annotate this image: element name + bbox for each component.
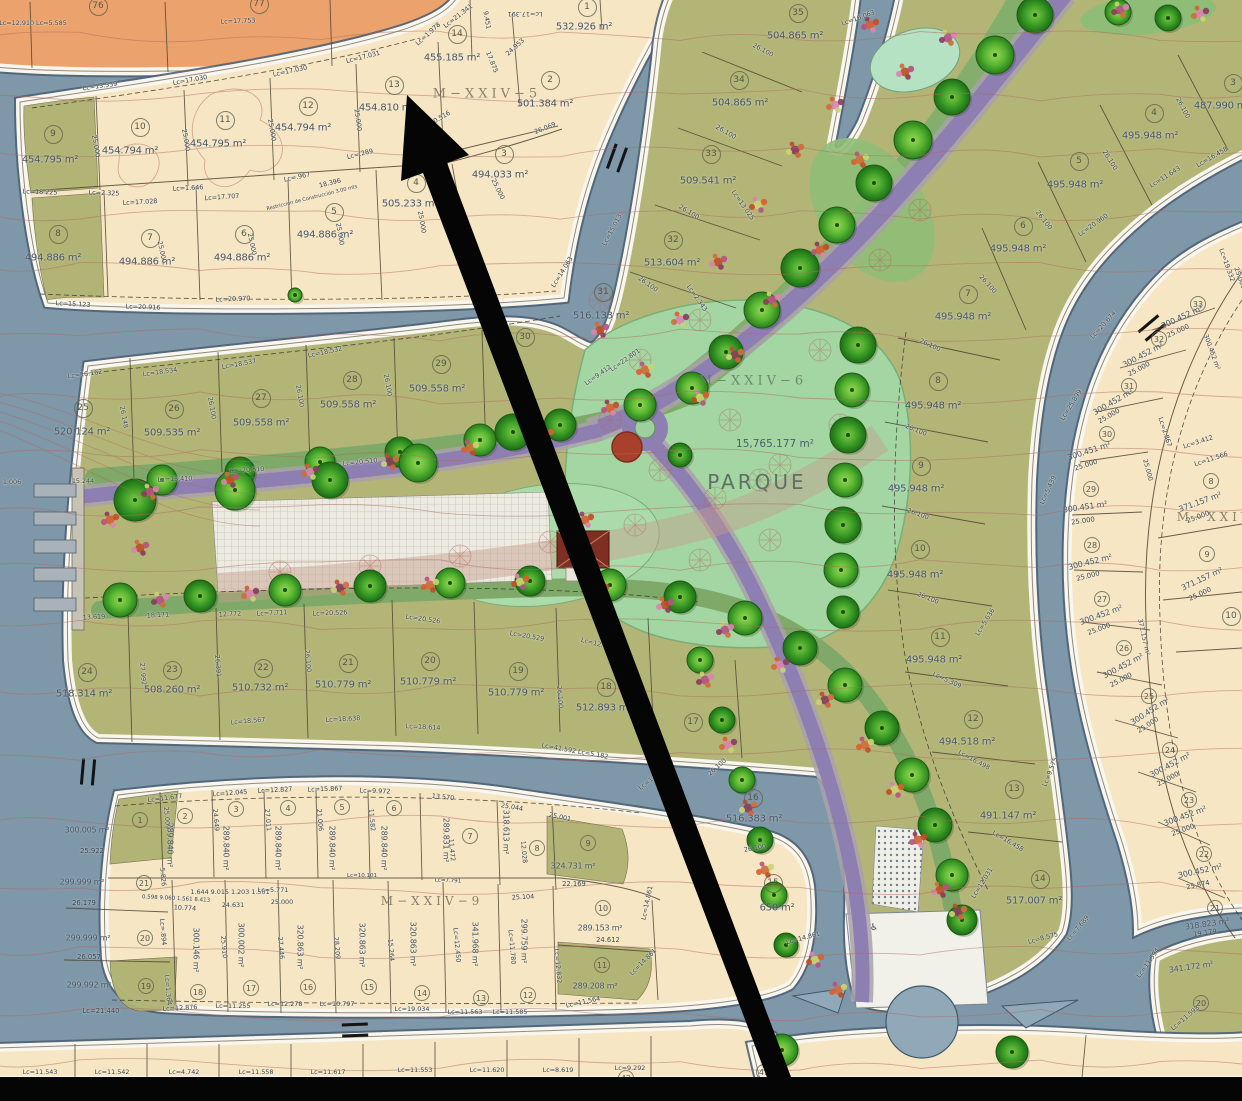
- site-plan-map: M−XXIV−5 M−XXIV−6 M−XXIV−7 M−XXIV−9 PARQ…: [0, 0, 1242, 1101]
- annotation-overlay: [0, 0, 1242, 1101]
- annotation-arrow: [401, 95, 800, 1101]
- annotation-bottom-bar: [0, 1077, 1242, 1101]
